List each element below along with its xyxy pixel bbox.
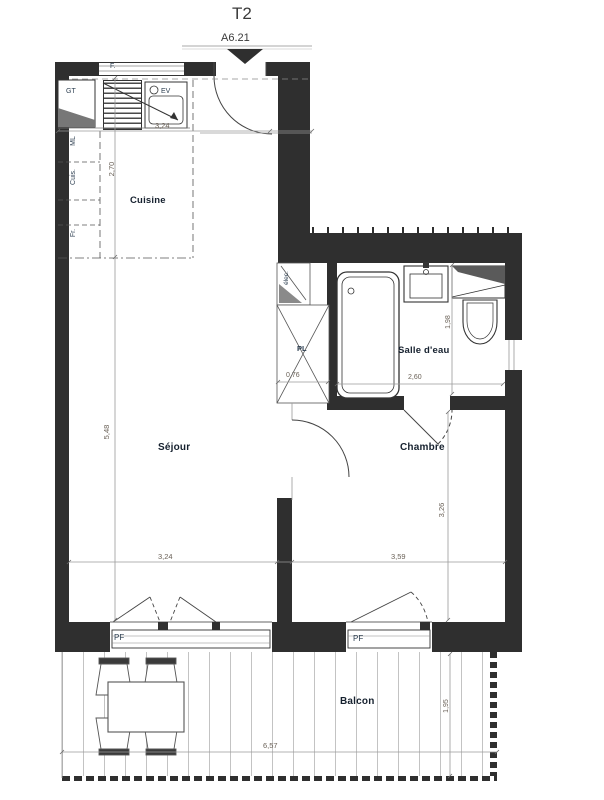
ev-label: EV [161, 88, 170, 95]
bath-counter [452, 266, 505, 298]
dim-balcon-width: 6,57 [263, 742, 278, 750]
wall-bottom-seg1 [55, 622, 110, 652]
wall-insulation-ticks [312, 227, 520, 234]
wall-salle-eau-left [327, 263, 337, 410]
dim-cuisine-depth: 2,70 [107, 149, 117, 189]
dim-chambre-height: 3,26 [437, 490, 447, 530]
washbasin [404, 262, 448, 302]
unit-reference: A6.21 [221, 33, 250, 44]
dim-cuisine-width: 3,24 [155, 122, 170, 130]
bathtub [337, 272, 399, 398]
toilet [463, 300, 497, 344]
wall-right [505, 263, 522, 652]
pf-left-opening [110, 622, 272, 652]
wall-bottom-seg3 [432, 622, 522, 652]
room-chambre: Chambre [400, 443, 445, 453]
wall-top-left [55, 62, 95, 76]
wall-top-right [266, 62, 310, 76]
window-f-label: F. [110, 63, 115, 70]
room-cuisine: Cuisine [130, 196, 166, 206]
dim-balcon-depth: 1,95 [442, 686, 452, 726]
wall-north-section [278, 233, 522, 263]
salle-eau-door-arc [404, 410, 452, 444]
floor-plan: T2 A6.21 F. GT EV ML Cuis. Fr. élec. PL … [0, 0, 604, 800]
dim-placard-width: 0,76 [286, 372, 300, 379]
wall-sejour-chambre-stub [277, 498, 292, 652]
room-sejour: Séjour [158, 443, 190, 453]
balcon-right-edge [490, 652, 497, 778]
balcon-bottom-edge [62, 776, 497, 781]
wall-salle-eau-bottom-right [450, 396, 507, 410]
wall-salle-eau-bottom-left [327, 396, 404, 410]
dim-chambre-width: 3,59 [391, 553, 406, 561]
chambre-door-arc [292, 403, 349, 500]
placard [277, 305, 329, 403]
plan-title: T2 [232, 5, 252, 22]
gt-label: GT [66, 88, 76, 95]
placard-label: PL [297, 345, 307, 353]
dim-sejour-height: 5,48 [102, 412, 112, 452]
entrance-door-arc [214, 62, 272, 134]
fr-label: Fr. [69, 213, 79, 253]
dim-salle-eau-width: 2,60 [408, 374, 422, 381]
window-cuisine [95, 62, 188, 76]
cuis-label: Cuis. [69, 157, 79, 197]
dim-sejour-width: 3,24 [158, 553, 173, 561]
elec-label: élec. [282, 258, 292, 298]
pf-right-label: PF [353, 635, 363, 643]
dim-salle-eau-height: 1,98 [444, 302, 454, 342]
washing-machine-hatch [103, 80, 142, 130]
room-balcon: Balcon [340, 697, 375, 707]
wall-top-mid [188, 62, 216, 76]
ml-label: ML [69, 121, 79, 161]
wall-entry-right [278, 76, 310, 236]
room-salle-eau: Salle d'eau [398, 346, 449, 356]
balcon-floor-hatch [62, 652, 492, 778]
wall-left [55, 62, 69, 652]
pf-left-label: PF [114, 634, 124, 642]
window-right-opening [505, 340, 522, 370]
